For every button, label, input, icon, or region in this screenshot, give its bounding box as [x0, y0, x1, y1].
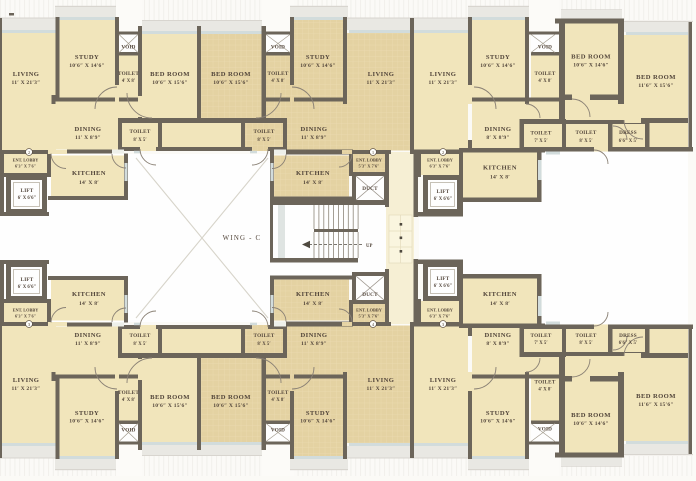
svg-text:5′3″ X 7′6″: 5′3″ X 7′6″	[358, 314, 379, 319]
svg-text:KITCHEN: KITCHEN	[296, 291, 330, 298]
svg-text:LIVING: LIVING	[430, 377, 457, 384]
svg-text:10′6″ X 14′6″: 10′6″ X 14′6″	[480, 419, 516, 425]
svg-text:5′3″ X 7′6″: 5′3″ X 7′6″	[358, 164, 379, 169]
svg-text:11′ X 21′3″: 11′ X 21′3″	[429, 80, 458, 86]
svg-text:6′ X 6′6″: 6′ X 6′6″	[18, 285, 37, 290]
svg-text:TOILET: TOILET	[268, 390, 289, 396]
svg-text:BED ROOM: BED ROOM	[636, 393, 676, 400]
svg-text:STUDY: STUDY	[486, 410, 510, 417]
svg-text:DINING: DINING	[75, 332, 102, 339]
svg-text:6′ X 6′6″: 6′ X 6′6″	[434, 197, 453, 202]
svg-text:TOILET: TOILET	[268, 71, 289, 77]
svg-text:DINING: DINING	[485, 332, 512, 339]
svg-text:10′6″ X 15′6″: 10′6″ X 15′6″	[152, 80, 188, 86]
svg-text:6′6″ X 5′: 6′6″ X 5′	[619, 139, 638, 144]
svg-text:4′ X 8′: 4′ X 8′	[271, 398, 285, 403]
svg-text:10′6″ X 14′6″: 10′6″ X 14′6″	[573, 63, 609, 69]
svg-text:LIFT: LIFT	[21, 277, 34, 283]
svg-text:BED ROOM: BED ROOM	[211, 71, 251, 78]
svg-text:14′ X 8′: 14′ X 8′	[490, 301, 510, 307]
svg-text:ENT. LOBBY: ENT. LOBBY	[427, 308, 454, 313]
svg-text:STUDY: STUDY	[75, 54, 99, 61]
svg-text:8′ X 5′: 8′ X 5′	[257, 138, 271, 143]
svg-text:11′ X 8′9″: 11′ X 8′9″	[301, 135, 327, 141]
svg-text:7′ X 5′: 7′ X 5′	[534, 139, 548, 144]
svg-text:LIFT: LIFT	[21, 188, 34, 194]
svg-text:4′ X 8′: 4′ X 8′	[271, 79, 285, 84]
svg-text:DINING: DINING	[75, 126, 102, 133]
svg-text:14′ X 8′: 14′ X 8′	[303, 301, 323, 307]
svg-text:TOILET: TOILET	[535, 71, 556, 77]
svg-text:VOID: VOID	[271, 428, 285, 434]
svg-text:TOILET: TOILET	[254, 129, 275, 135]
svg-text:6′3″ X 7′6″: 6′3″ X 7′6″	[15, 164, 36, 169]
svg-text:14′ X 8′: 14′ X 8′	[490, 175, 510, 181]
svg-text:8′ X 5′: 8′ X 5′	[133, 138, 147, 143]
svg-text:10′6″ X 15′6″: 10′6″ X 15′6″	[152, 403, 188, 409]
svg-text:LIVING: LIVING	[13, 377, 40, 384]
svg-text:BED ROOM: BED ROOM	[636, 74, 676, 81]
svg-text:14′ X 8′: 14′ X 8′	[79, 180, 99, 186]
svg-text:ENT. LOBBY: ENT. LOBBY	[13, 158, 40, 163]
svg-text:14′ X 8′: 14′ X 8′	[303, 180, 323, 186]
svg-text:14′ X 8′: 14′ X 8′	[79, 301, 99, 307]
svg-text:DUCT: DUCT	[362, 186, 378, 192]
svg-text:LIVING: LIVING	[368, 377, 395, 384]
svg-text:10′6″ X 14′6″: 10′6″ X 14′6″	[69, 419, 105, 425]
svg-text:KITCHEN: KITCHEN	[483, 291, 517, 298]
svg-text:11′6″ X 15′6″: 11′6″ X 15′6″	[638, 83, 673, 89]
svg-text:VOID: VOID	[121, 428, 135, 434]
svg-text:BED ROOM: BED ROOM	[571, 54, 611, 61]
svg-text:TOILET: TOILET	[531, 131, 552, 137]
svg-text:11′ X 8′9″: 11′ X 8′9″	[75, 135, 101, 141]
svg-text:11′ X 21′3″: 11′ X 21′3″	[12, 386, 41, 392]
svg-text:DRESS: DRESS	[619, 130, 637, 136]
svg-text:11′ X 21′3″: 11′ X 21′3″	[367, 386, 396, 392]
svg-text:10′6″ X 14′6″: 10′6″ X 14′6″	[480, 63, 516, 69]
svg-text:8′ X 5′: 8′ X 5′	[133, 342, 147, 347]
svg-text:ENT. LOBBY: ENT. LOBBY	[13, 308, 40, 313]
svg-text:VOID: VOID	[121, 45, 135, 51]
svg-text:4′ X 8′: 4′ X 8′	[538, 79, 552, 84]
svg-text:10′6″ X 14′6″: 10′6″ X 14′6″	[300, 63, 336, 69]
svg-text:6′ X 6′6″: 6′ X 6′6″	[434, 284, 453, 289]
svg-text:10′6″ X 14′6″: 10′6″ X 14′6″	[69, 63, 105, 69]
svg-text:10′6″ X 15′6″: 10′6″ X 15′6″	[213, 403, 249, 409]
svg-text:TOILET: TOILET	[118, 390, 139, 396]
svg-text:TOILET: TOILET	[130, 333, 151, 339]
svg-text:8′ X 8′9″: 8′ X 8′9″	[486, 135, 509, 141]
svg-text:11′ X 8′9″: 11′ X 8′9″	[301, 341, 327, 347]
svg-text:VOID: VOID	[271, 45, 285, 51]
svg-text:LIVING: LIVING	[368, 71, 395, 78]
svg-text:8′ X 5′: 8′ X 5′	[579, 139, 593, 144]
svg-text:TOILET: TOILET	[130, 129, 151, 135]
svg-text:TOILET: TOILET	[576, 333, 597, 339]
svg-text:LIFT: LIFT	[437, 189, 450, 195]
svg-text:11′ X 21′3″: 11′ X 21′3″	[12, 80, 41, 86]
svg-text:6′6″ X 5′: 6′6″ X 5′	[619, 341, 638, 346]
svg-text:4′ X 8′: 4′ X 8′	[122, 79, 136, 84]
svg-text:8′ X 5′: 8′ X 5′	[257, 342, 271, 347]
svg-text:4′ X 8′: 4′ X 8′	[122, 398, 136, 403]
svg-text:DINING: DINING	[485, 126, 512, 133]
svg-text:TOILET: TOILET	[118, 71, 139, 77]
svg-text:8′ X 5′: 8′ X 5′	[579, 341, 593, 346]
svg-text:KITCHEN: KITCHEN	[72, 291, 106, 298]
svg-text:10′6″ X 15′6″: 10′6″ X 15′6″	[213, 80, 249, 86]
svg-text:8′ X 8′9″: 8′ X 8′9″	[486, 341, 509, 347]
svg-text:11′6″ X 15′6″: 11′6″ X 15′6″	[638, 402, 673, 408]
svg-text:11′ X 21′3″: 11′ X 21′3″	[429, 386, 458, 392]
svg-text:STUDY: STUDY	[306, 410, 330, 417]
svg-text:LIFT: LIFT	[437, 276, 450, 282]
svg-text:TOILET: TOILET	[254, 333, 275, 339]
svg-text:6′3″ X 7′6″: 6′3″ X 7′6″	[429, 164, 450, 169]
svg-text:STUDY: STUDY	[486, 54, 510, 61]
svg-text:7′ X 5′: 7′ X 5′	[534, 341, 548, 346]
svg-text:10′6″ X 14′6″: 10′6″ X 14′6″	[300, 419, 336, 425]
svg-text:TOILET: TOILET	[576, 130, 597, 136]
svg-text:11′ X 8′9″: 11′ X 8′9″	[75, 341, 101, 347]
svg-text:BED ROOM: BED ROOM	[211, 394, 251, 401]
svg-text:DINING: DINING	[301, 126, 328, 133]
svg-text:BED ROOM: BED ROOM	[150, 71, 190, 78]
svg-text:ENT. LOBBY: ENT. LOBBY	[427, 158, 454, 163]
svg-text:BED ROOM: BED ROOM	[571, 412, 611, 419]
svg-text:6′ X 6′6″: 6′ X 6′6″	[18, 196, 37, 201]
svg-text:DUCT: DUCT	[362, 292, 378, 298]
svg-text:11′ X 21′3″: 11′ X 21′3″	[367, 80, 396, 86]
svg-text:6′3″ X 7′6″: 6′3″ X 7′6″	[15, 314, 36, 319]
svg-text:DRESS: DRESS	[619, 333, 637, 339]
svg-text:KITCHEN: KITCHEN	[72, 170, 106, 177]
svg-text:STUDY: STUDY	[75, 410, 99, 417]
svg-text:ENT. LOBBY: ENT. LOBBY	[356, 308, 383, 313]
svg-text:VOID: VOID	[538, 427, 552, 433]
svg-text:KITCHEN: KITCHEN	[483, 165, 517, 172]
svg-text:4′ X 8′: 4′ X 8′	[538, 388, 552, 393]
svg-text:TOILET: TOILET	[535, 380, 556, 386]
svg-text:WING - C: WING - C	[223, 235, 262, 242]
svg-text:VOID: VOID	[538, 45, 552, 51]
svg-text:LIVING: LIVING	[13, 71, 40, 78]
svg-text:UP: UP	[366, 244, 372, 249]
svg-text:6′3″ X 7′6″: 6′3″ X 7′6″	[429, 314, 450, 319]
svg-text:KITCHEN: KITCHEN	[296, 170, 330, 177]
svg-text:10′6″ X 14′6″: 10′6″ X 14′6″	[573, 421, 609, 427]
svg-text:ENT. LOBBY: ENT. LOBBY	[356, 158, 383, 163]
svg-text:TOILET: TOILET	[531, 333, 552, 339]
svg-text:STUDY: STUDY	[306, 54, 330, 61]
svg-text:BED ROOM: BED ROOM	[150, 394, 190, 401]
svg-text:DINING: DINING	[301, 332, 328, 339]
svg-text:LIVING: LIVING	[430, 71, 457, 78]
